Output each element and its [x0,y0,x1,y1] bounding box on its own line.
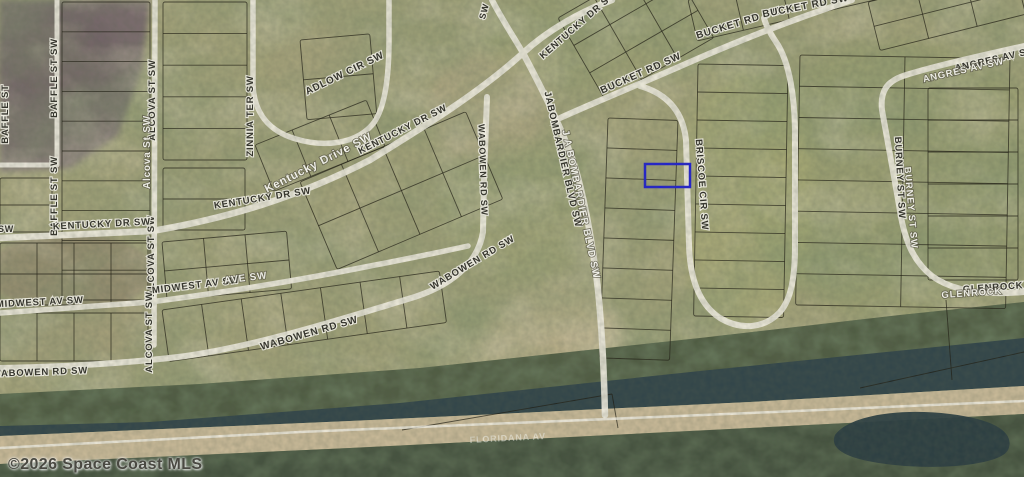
copyright-watermark: ©2026 Space Coast MLS [8,456,203,474]
image-grain [0,0,1024,477]
mls-map-view: BAFFLE ST SWBAFFLE ST SWBAFFLE STALCOVA … [0,0,1024,477]
satellite-parcel-map[interactable]: BAFFLE ST SWBAFFLE ST SWBAFFLE STALCOVA … [0,0,1024,477]
